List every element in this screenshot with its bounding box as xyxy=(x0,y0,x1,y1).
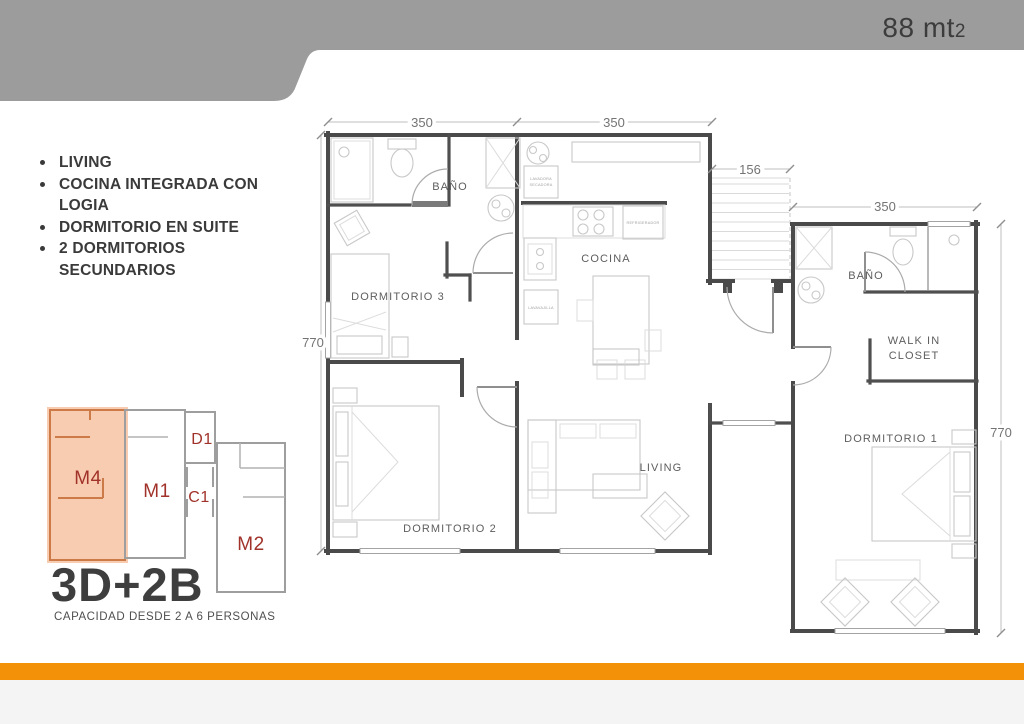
dorm2-furniture xyxy=(333,388,439,537)
unit-label-m4: M4 xyxy=(74,468,101,489)
room-label-dorm2: DORMITORIO 2 xyxy=(403,523,497,535)
dorm1-furniture xyxy=(821,430,976,626)
right-wing-walls xyxy=(792,222,978,633)
hall-closet xyxy=(486,138,520,221)
unit-label-d1: D1 xyxy=(191,431,212,448)
dim-wing-top: 350 xyxy=(874,199,896,214)
appliance-label-washer-2: SECADORA xyxy=(530,183,553,187)
unit-label-m2: M2 xyxy=(237,534,264,555)
appliance-label-washer-1: LAVADORA xyxy=(530,177,552,181)
room-label-bano-suite: BAÑO xyxy=(848,269,884,282)
capacity-text: CAPACIDAD DESDE 2 A 6 PERSONAS xyxy=(54,611,275,623)
dorm3-furniture xyxy=(331,210,408,358)
footer-accent-bar xyxy=(0,663,1024,680)
room-label-living: LIVING xyxy=(640,462,683,474)
footer-strip xyxy=(0,680,1024,724)
room-label-dorm3: DORMITORIO 3 xyxy=(351,291,445,303)
inner-walls xyxy=(328,135,977,551)
room-label-dorm1: DORMITORIO 1 xyxy=(844,433,938,445)
room-label-cocina: COCINA xyxy=(581,253,630,265)
room-label-walkin-2: CLOSET xyxy=(889,350,940,362)
bathroom-main-fixtures xyxy=(331,138,416,202)
doors xyxy=(412,169,905,427)
room-label-bano-main: BAÑO xyxy=(432,180,468,193)
appliance-label-dishwasher: LAVAVAJILLA xyxy=(528,306,554,310)
dim-top-left: 350 xyxy=(411,115,433,130)
living-furniture xyxy=(528,349,689,540)
dim-left-height: 770 xyxy=(302,335,324,350)
unit-type-title: 3D+2B xyxy=(51,561,204,608)
windows xyxy=(326,222,971,634)
room-label-walkin-1: WALK IN xyxy=(888,335,941,347)
dimension-lines xyxy=(317,118,1005,637)
dim-wing-height: 770 xyxy=(990,425,1012,440)
stairwell xyxy=(711,178,790,281)
appliance-label-fridge: REFRIGERADOR xyxy=(627,221,660,225)
unit-label-m1: M1 xyxy=(143,481,170,502)
dim-top-right: 350 xyxy=(603,115,625,130)
unit-label-c1: C1 xyxy=(188,489,209,506)
dim-entry: 156 xyxy=(739,162,761,177)
